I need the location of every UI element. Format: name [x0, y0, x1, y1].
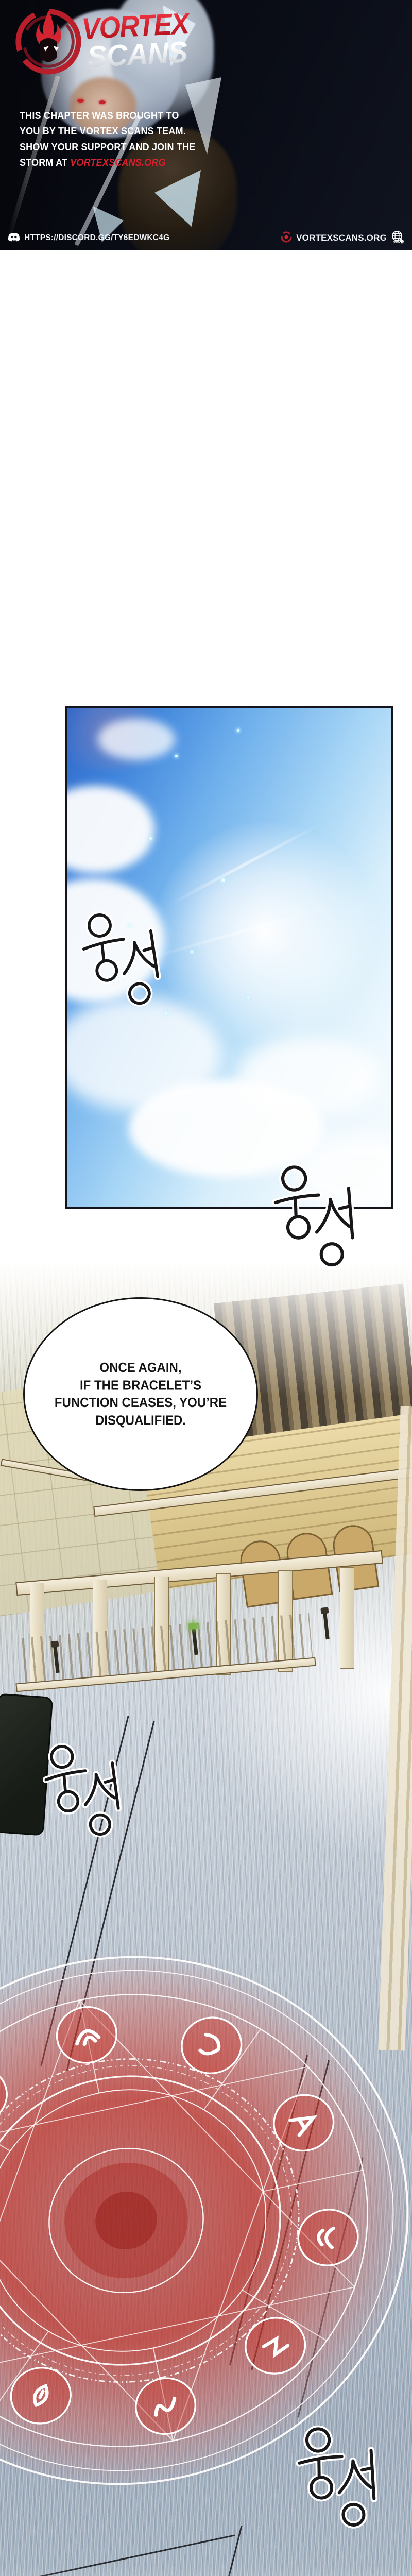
- sfx-murmur: [293, 2419, 389, 2540]
- banner-message-line: THIS CHAPTER WAS BROUGHT TO: [20, 108, 214, 124]
- cloud: [65, 786, 154, 873]
- banner-message-line: YOU BY THE VORTEX SCANS TEAM.: [20, 124, 214, 139]
- banner-message: THIS CHAPTER WAS BROUGHT TO YOU BY THE V…: [20, 108, 214, 171]
- globe-www-icon: WWW: [390, 230, 405, 246]
- panel-sky: [65, 706, 393, 1209]
- site-link[interactable]: VORTEXSCANS.ORG WWW: [280, 230, 405, 246]
- mini-vortex-logo-icon: [280, 231, 293, 246]
- scanlation-banner: VORTEX SCANS THIS CHAPTER WAS BROUGHT TO…: [0, 0, 412, 250]
- cloud: [237, 1038, 381, 1115]
- discord-url-label: HTTPS://DISCORD.GG/TY6EDWKC4G: [24, 233, 169, 243]
- banner-message-tail: STORM AT: [20, 157, 70, 168]
- discord-icon: [7, 232, 21, 245]
- balustrade-column: [340, 1567, 354, 1669]
- banner-footer: HTTPS://DISCORD.GG/TY6EDWKC4G VORTEXSCAN…: [0, 226, 412, 250]
- sfx-murmur: [38, 1733, 135, 1852]
- banner-site-link[interactable]: VORTEXSCANS.ORG: [70, 157, 165, 168]
- lamp-post: [323, 1613, 329, 1639]
- sfx-murmur: [268, 1156, 369, 1281]
- webtoon-page: VORTEX SCANS THIS CHAPTER WAS BROUGHT TO…: [0, 0, 412, 2576]
- banner-wordmark: VORTEX SCANS: [81, 8, 217, 72]
- bubble-text: ONCE AGAIN, IF THE BRACELET’S FUNCTION C…: [55, 1359, 227, 1430]
- speech-bubble-barrier-group: THE BARRIER ACTIVATES ONLY AGAINST MAGIC…: [41, 2568, 397, 2576]
- speech-bubble-disqualified: ONCE AGAIN, IF THE BRACELET’S FUNCTION C…: [23, 1297, 258, 1491]
- vortex-flame-logo-icon: [12, 3, 84, 78]
- banner-message-line: STORM AT VORTEXSCANS.ORG: [20, 155, 214, 171]
- banner-message-line: SHOW YOUR SUPPORT AND JOIN THE: [20, 140, 214, 155]
- discord-link[interactable]: HTTPS://DISCORD.GG/TY6EDWKC4G: [7, 232, 169, 245]
- cloud: [98, 719, 175, 760]
- site-url-label: VORTEXSCANS.ORG: [296, 233, 387, 243]
